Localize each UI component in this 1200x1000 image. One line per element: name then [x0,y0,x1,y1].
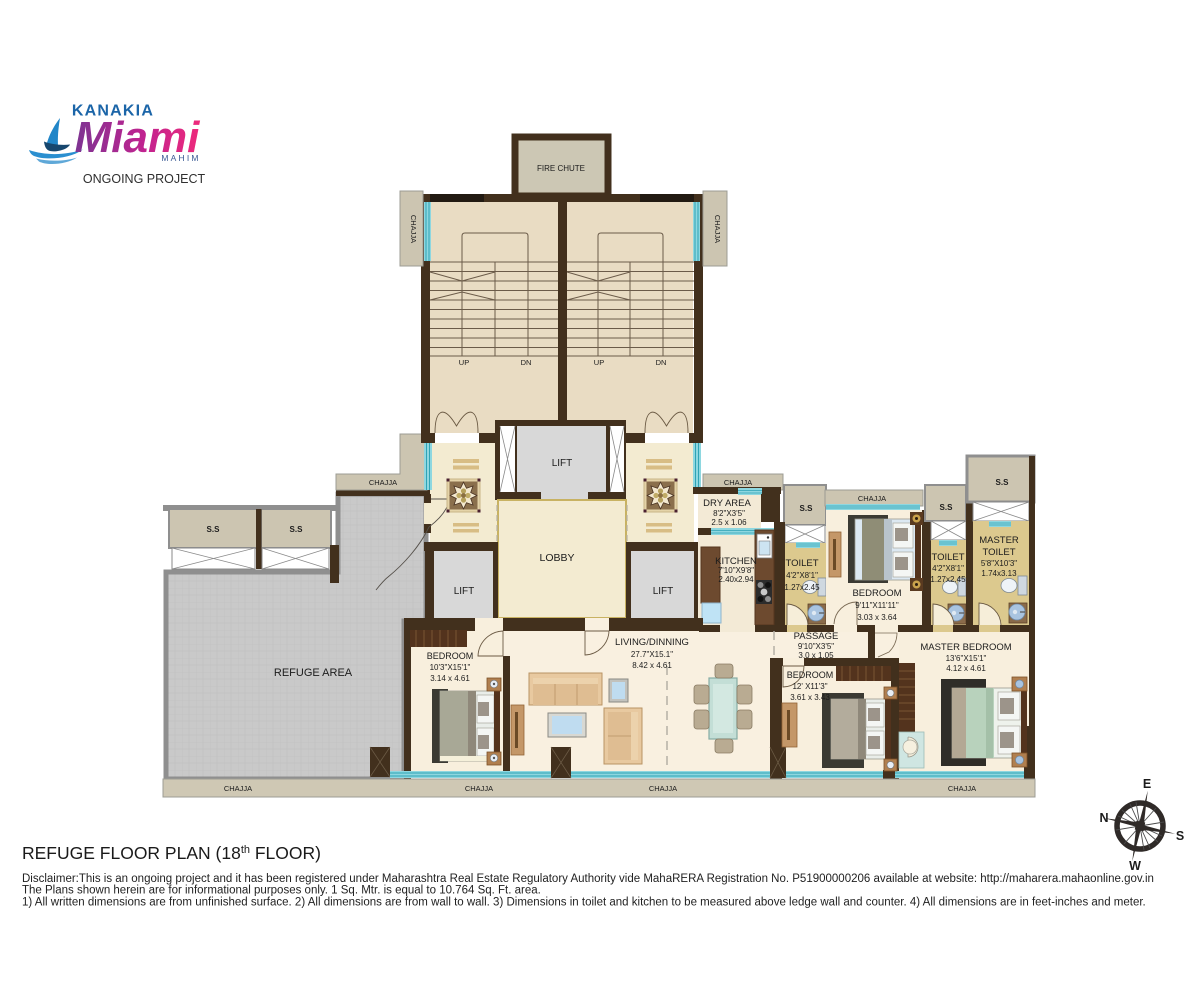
svg-text:N: N [1099,811,1108,825]
svg-text:1.27x2.45: 1.27x2.45 [784,583,820,592]
svg-text:4'2"X8'1": 4'2"X8'1" [786,571,818,580]
svg-text:8'2"X3'5": 8'2"X3'5" [713,509,745,518]
svg-text:S.S: S.S [800,504,814,513]
svg-text:9'10"X3'5": 9'10"X3'5" [798,642,834,651]
svg-text:4.12 x 4.61: 4.12 x 4.61 [946,664,986,673]
svg-text:CHAJJA: CHAJJA [649,784,677,793]
svg-text:S.S: S.S [940,503,954,512]
svg-text:MASTER: MASTER [979,535,1019,546]
svg-text:PASSAGE: PASSAGE [794,631,839,642]
svg-text:27.7"X15.1": 27.7"X15.1" [631,650,673,659]
svg-text:REFUGE FLOOR PLAN (18th FLOOR): REFUGE FLOOR PLAN (18th FLOOR) [22,843,321,863]
svg-text:MAHIM: MAHIM [161,153,200,163]
svg-text:W: W [1129,859,1141,873]
svg-text:TOILET: TOILET [931,552,964,563]
svg-text:9'11"X11'11": 9'11"X11'11" [855,601,899,610]
svg-text:CHAJJA: CHAJJA [948,784,976,793]
svg-text:Disclaimer:This is an ongoing: Disclaimer:This is an ongoing project an… [22,873,1154,885]
svg-text:1.74x3.13: 1.74x3.13 [981,569,1017,578]
svg-text:DN: DN [656,358,667,367]
svg-text:UP: UP [459,358,469,367]
svg-text:CHAJJA: CHAJJA [724,478,752,487]
svg-text:LIFT: LIFT [454,586,475,597]
svg-text:TOILET: TOILET [785,558,818,569]
svg-text:1) All written dimensions are: 1) All written dimensions are from unfin… [22,897,1146,909]
svg-text:REFUGE AREA: REFUGE AREA [274,667,353,679]
svg-text:3.0 x 1.05: 3.0 x 1.05 [798,651,834,660]
svg-text:S.S: S.S [996,478,1010,487]
svg-text:3.14 x 4.61: 3.14 x 4.61 [430,674,470,683]
svg-text:FIRE CHUTE: FIRE CHUTE [537,164,585,173]
svg-text:UP: UP [594,358,604,367]
svg-text:1.27x2.45: 1.27x2.45 [930,575,966,584]
svg-text:The Plans shown herein are for: The Plans shown herein are for informati… [22,885,541,897]
svg-text:BEDROOM: BEDROOM [787,670,834,680]
svg-text:S.S: S.S [290,525,304,534]
svg-text:LIFT: LIFT [552,458,573,469]
svg-text:3.03 x 3.64: 3.03 x 3.64 [857,613,897,622]
svg-text:CHAJJA: CHAJJA [713,215,722,243]
svg-text:DN: DN [521,358,532,367]
svg-text:13'6"X15'1": 13'6"X15'1" [946,654,987,663]
svg-text:12' X11'3": 12' X11'3" [792,682,827,691]
svg-text:LIFT: LIFT [653,586,674,597]
svg-text:CHAJJA: CHAJJA [465,784,493,793]
svg-text:BEDROOM: BEDROOM [427,651,474,661]
svg-text:2.5 x 1.06: 2.5 x 1.06 [711,518,747,527]
svg-text:2.40x2.94: 2.40x2.94 [718,575,754,584]
svg-text:BEDROOM: BEDROOM [852,588,901,599]
svg-text:LOBBY: LOBBY [539,552,574,564]
svg-text:S: S [1176,829,1184,843]
svg-text:TOILET: TOILET [982,547,1015,558]
svg-text:3.61 x 3.43: 3.61 x 3.43 [790,693,830,702]
svg-text:DRY AREA: DRY AREA [703,498,751,509]
svg-text:5'8"X10'3": 5'8"X10'3" [981,559,1017,568]
svg-text:E: E [1143,777,1151,791]
svg-text:8.42 x 4.61: 8.42 x 4.61 [632,661,672,670]
svg-text:CHAJJA: CHAJJA [858,494,886,503]
svg-text:LIVING/DINNING: LIVING/DINNING [615,637,689,648]
svg-text:MASTER BEDROOM: MASTER BEDROOM [920,642,1011,653]
svg-text:ONGOING PROJECT: ONGOING PROJECT [83,172,206,186]
svg-text:10'3"X15'1": 10'3"X15'1" [430,663,471,672]
svg-text:7'10"X9'8": 7'10"X9'8" [718,566,754,575]
svg-text:S.S: S.S [207,525,221,534]
svg-text:CHAJJA: CHAJJA [409,215,418,243]
svg-text:CHAJJA: CHAJJA [224,784,252,793]
svg-text:CHAJJA: CHAJJA [369,478,397,487]
svg-text:4'2"X8'1": 4'2"X8'1" [932,564,964,573]
